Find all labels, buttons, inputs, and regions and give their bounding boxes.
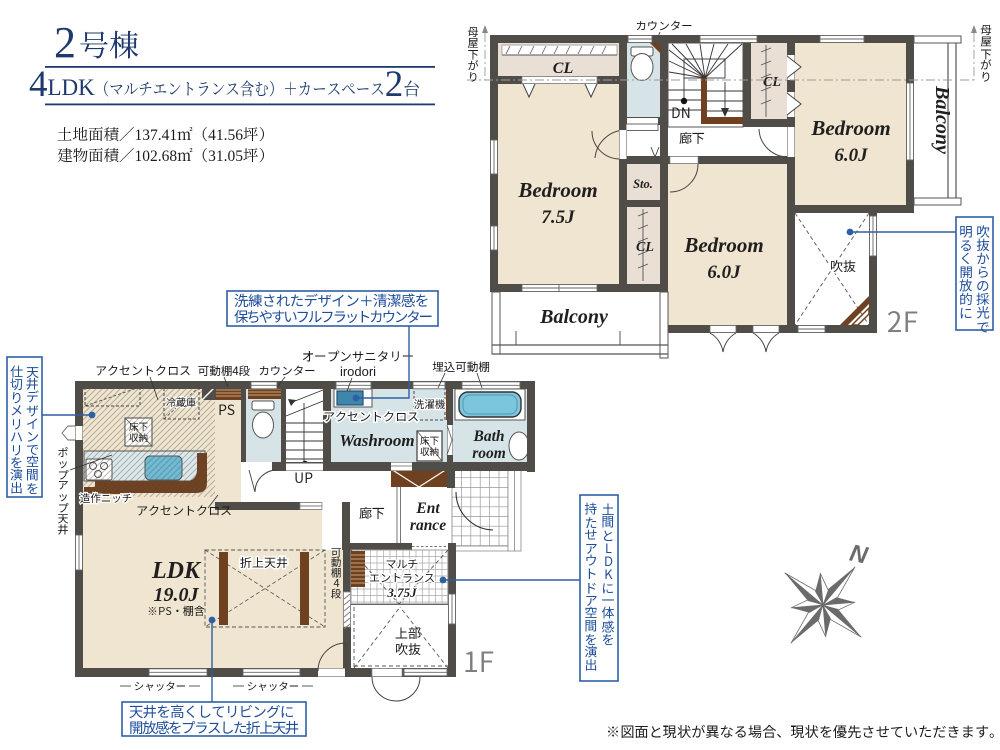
svg-text:廊下: 廊下 — [359, 503, 385, 522]
svg-text:CL: CL — [636, 240, 654, 255]
svg-text:Bedroom: Bedroom — [517, 178, 597, 202]
svg-text:母屋下がり: 母屋下がり — [465, 26, 481, 82]
svg-text:room: room — [472, 445, 506, 462]
svg-text:吹抜: 吹抜 — [830, 256, 856, 275]
svg-text:母屋下がり: 母屋下がり — [978, 24, 994, 82]
svg-text:CL: CL — [763, 75, 781, 90]
svg-text:土地面積／137.41㎡（41.56坪）: 土地面積／137.41㎡（41.56坪） — [57, 123, 274, 145]
svg-text:irodori: irodori — [340, 361, 376, 380]
svg-text:PS: PS — [218, 400, 235, 420]
svg-text:Sto.: Sto. — [633, 177, 653, 191]
svg-text:※PS・棚含: ※PS・棚含 — [147, 603, 205, 619]
svg-text:LDK: LDK — [151, 558, 202, 584]
svg-text:収納: 収納 — [420, 444, 440, 458]
svg-text:Bedroom: Bedroom — [810, 116, 890, 140]
svg-text:カウンター: カウンター — [258, 363, 316, 379]
svg-text:建物面積／102.68㎡（31.05坪）: 建物面積／102.68㎡（31.05坪） — [57, 144, 274, 166]
svg-text:土間とLDKに一体感を: 土間とLDKに一体感を — [599, 502, 618, 645]
svg-text:Washroom: Washroom — [339, 431, 414, 450]
svg-text:仕切りメリハリを演出: 仕切りメリハリを演出 — [7, 364, 26, 494]
svg-text:アクセントクロス: アクセントクロス — [323, 408, 419, 425]
svg-text:7.5J: 7.5J — [541, 207, 575, 228]
svg-text:開放感をプラスした折上天井: 開放感をプラスした折上天井 — [129, 717, 299, 738]
svg-text:シャッター: シャッター — [134, 679, 187, 694]
svg-text:シャッター: シャッター — [247, 679, 300, 694]
svg-text:明るく開放的に: 明るく開放的に — [956, 224, 976, 319]
svg-text:1F: 1F — [463, 641, 494, 681]
svg-text:造作ニッチ: 造作ニッチ — [80, 491, 133, 506]
svg-text:吹抜からの採光で: 吹抜からの採光で — [973, 224, 993, 333]
svg-text:折上天井: 折上天井 — [240, 554, 288, 571]
svg-text:ポップアップ天井: ポップアップ天井 — [55, 446, 71, 536]
svg-text:Bath: Bath — [472, 428, 504, 445]
svg-text:rance: rance — [410, 517, 446, 534]
svg-text:保ちやすいフルフラットカウンター: 保ちやすいフルフラットカウンター — [234, 306, 431, 327]
svg-text:持たせアウトドア空間を演出: 持たせアウトドア空間を演出 — [582, 502, 601, 671]
svg-text:6.0J: 6.0J — [707, 262, 741, 283]
svg-text:DN: DN — [671, 103, 691, 123]
svg-text:Bedroom: Bedroom — [683, 233, 763, 257]
svg-text:Ent: Ent — [415, 500, 440, 517]
svg-text:CL: CL — [553, 60, 574, 77]
svg-text:Balcony: Balcony — [931, 85, 953, 154]
svg-text:可動棚4段: 可動棚4段 — [198, 363, 250, 379]
svg-text:エントランス: エントランス — [369, 570, 435, 586]
svg-text:アクセントクロス: アクセントクロス — [136, 502, 232, 519]
svg-text:3.75J: 3.75J — [386, 585, 417, 600]
svg-text:可動棚4段: 可動棚4段 — [329, 546, 344, 600]
svg-text:6.0J: 6.0J — [834, 145, 868, 166]
svg-text:吹抜: 吹抜 — [395, 639, 421, 658]
svg-text:※図面と現状が異なる場合、現状を優先させていただきます。: ※図面と現状が異なる場合、現状を優先させていただきます。 — [606, 722, 1000, 742]
svg-text:廊下: 廊下 — [679, 128, 705, 147]
svg-text:アクセントクロス: アクセントクロス — [95, 362, 191, 379]
svg-text:カウンター: カウンター — [635, 18, 693, 34]
svg-text:2F: 2F — [887, 301, 918, 341]
svg-text:埋込可動棚: 埋込可動棚 — [432, 359, 490, 375]
svg-text:Balcony: Balcony — [539, 306, 608, 328]
